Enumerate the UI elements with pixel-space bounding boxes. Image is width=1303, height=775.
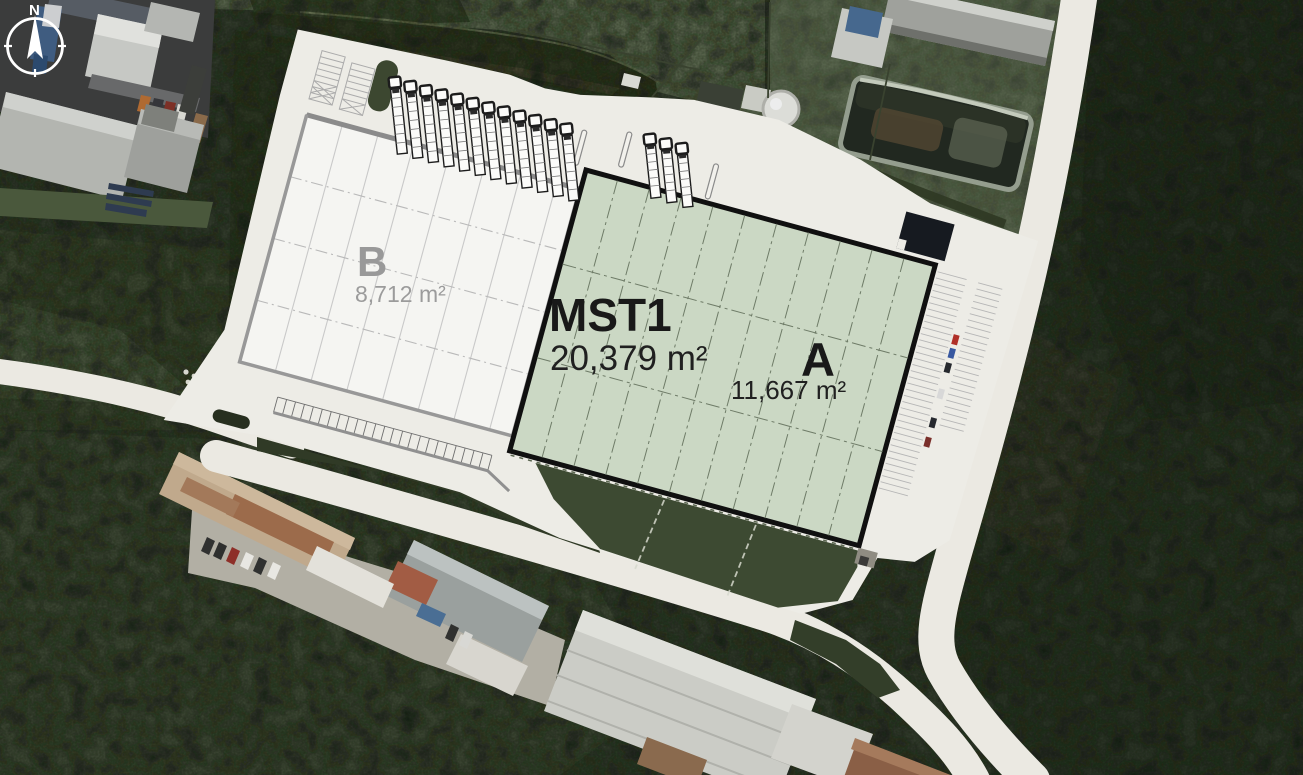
svg-text:N: N [29,2,40,19]
svg-text:11,667 m²: 11,667 m² [731,375,846,405]
svg-text:MST1: MST1 [549,289,672,341]
svg-text:20,379 m²: 20,379 m² [550,339,708,378]
svg-text:8,712 m²: 8,712 m² [355,281,446,307]
svg-text:B: B [357,238,387,285]
